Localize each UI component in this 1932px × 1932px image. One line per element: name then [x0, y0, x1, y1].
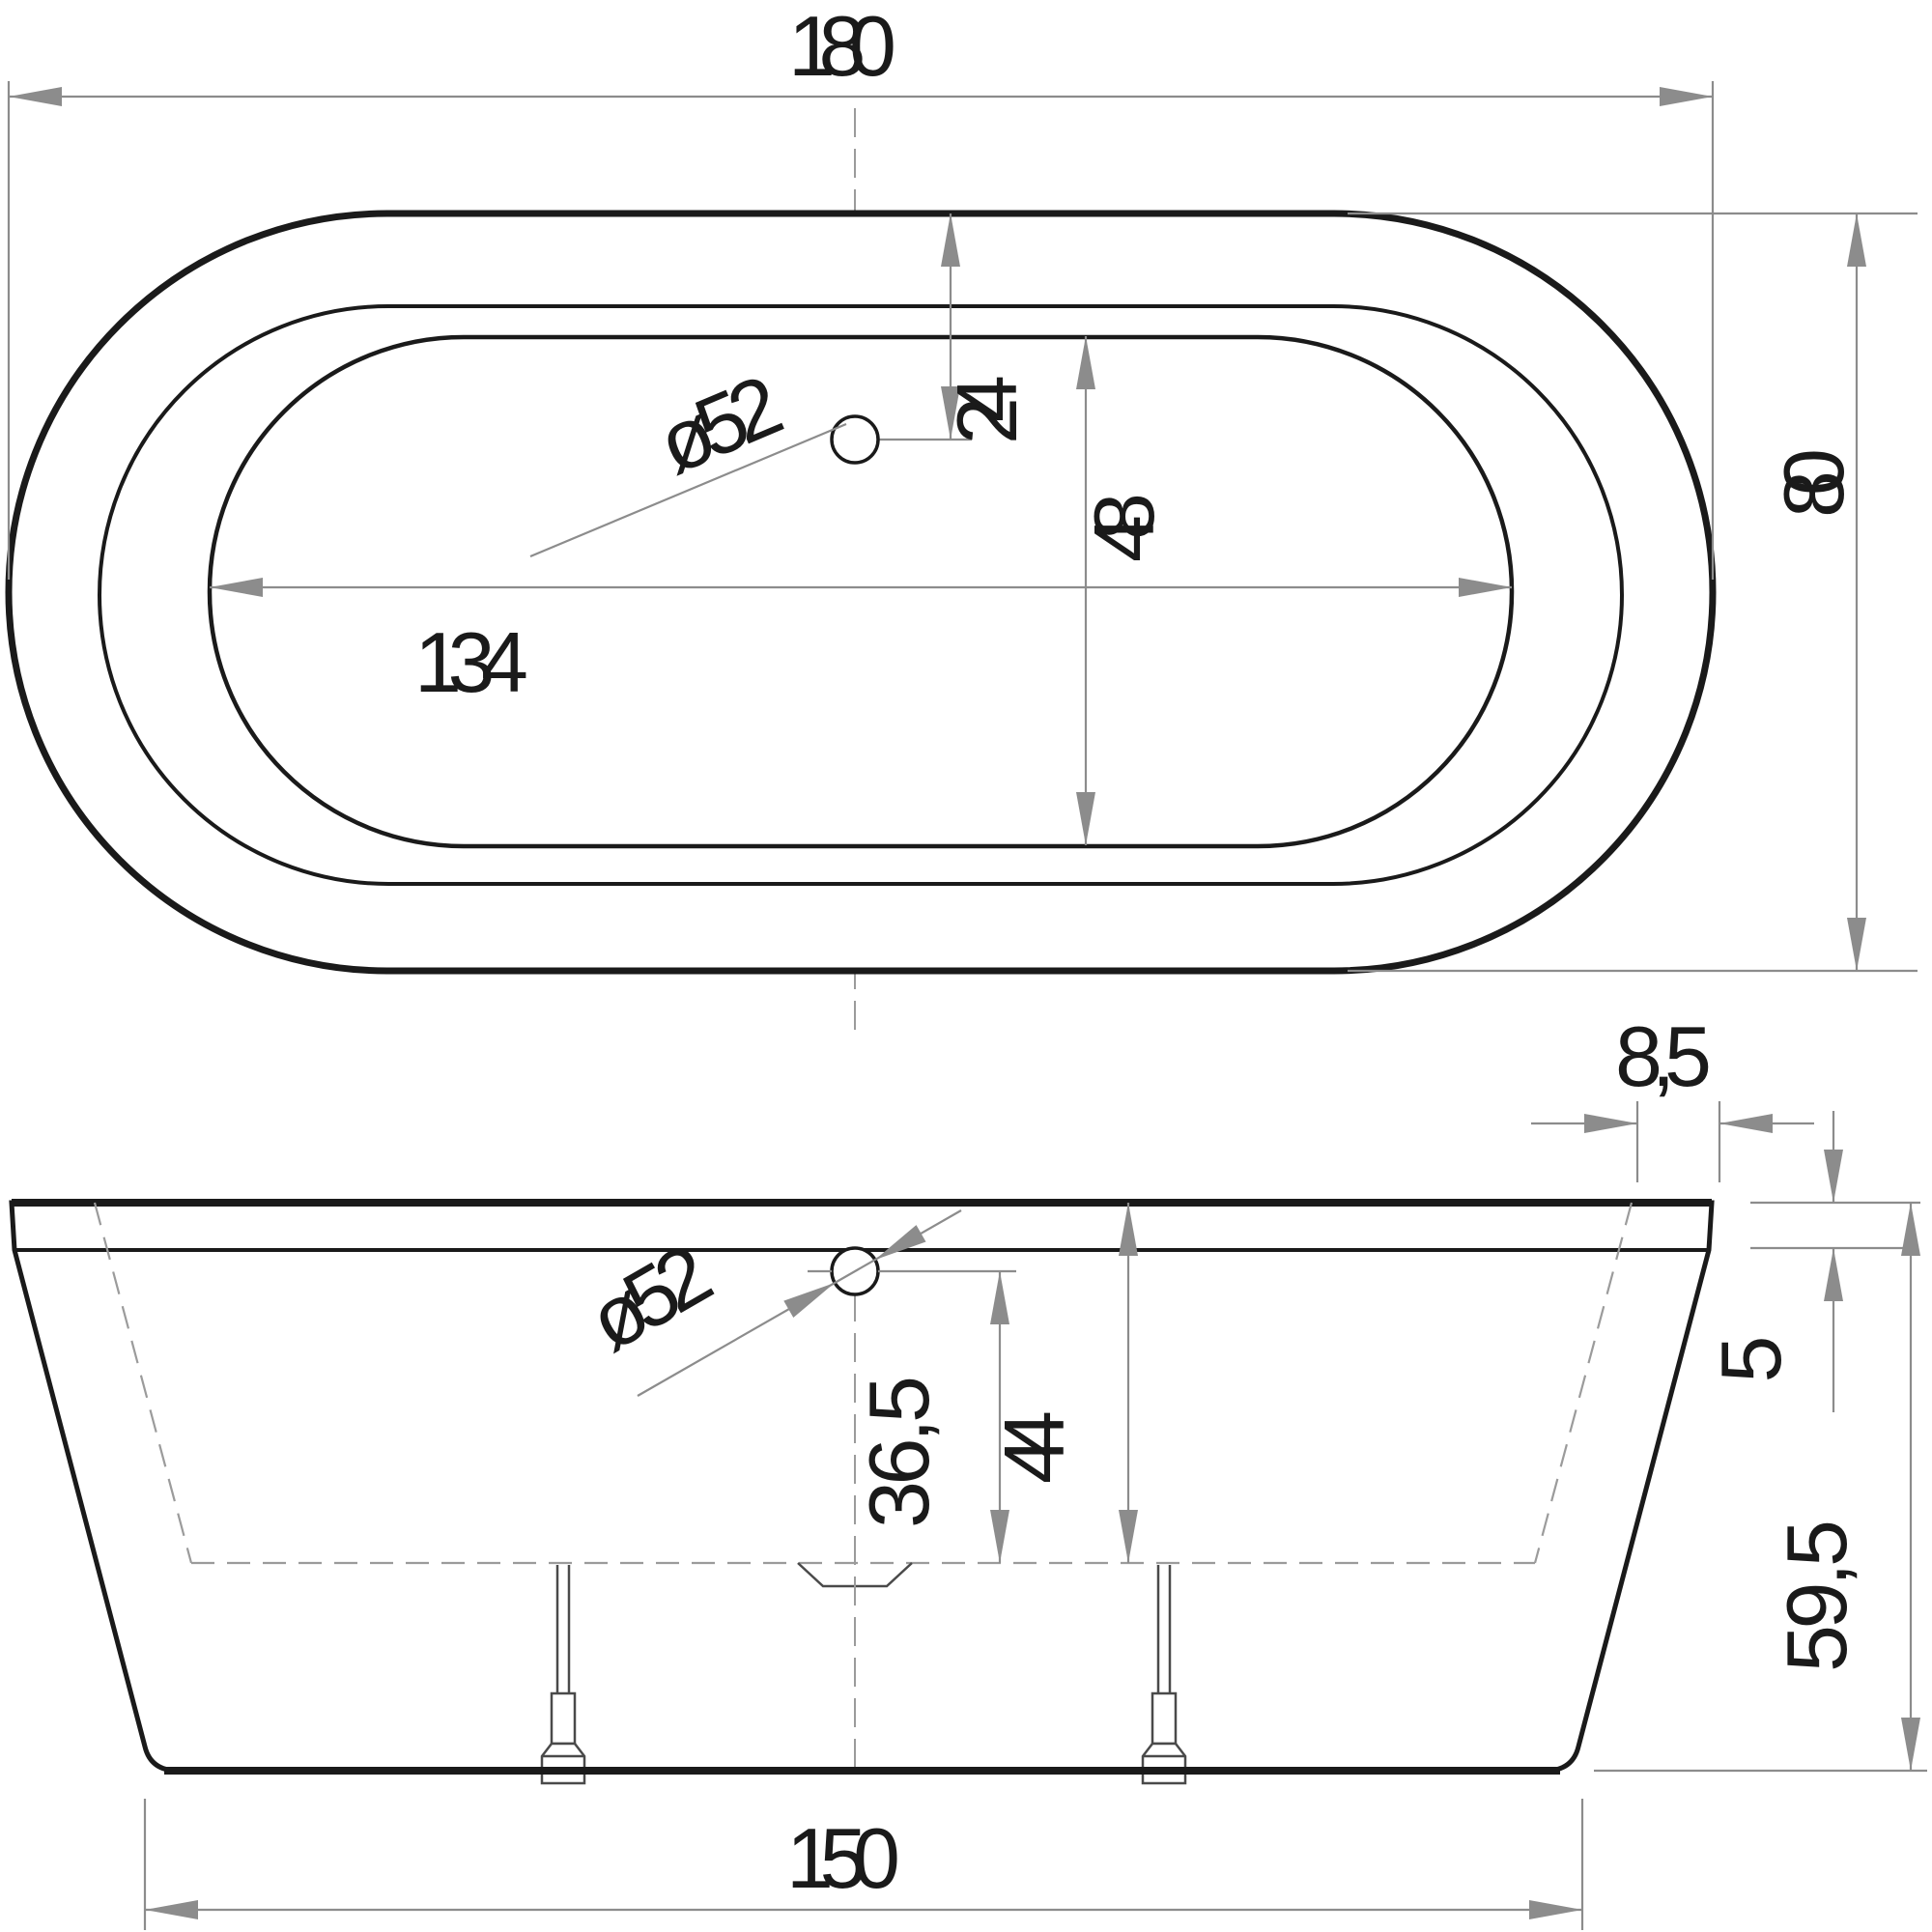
dim-label-48: 48: [1076, 493, 1172, 562]
drawing-canvas: 180 80 134 24: [0, 0, 1932, 1932]
top-view: 180 80 134 24: [9, 0, 1918, 1041]
bathtub-technical-drawing: 180 80 134 24: [0, 0, 1932, 1932]
drain-hole-plan: [832, 416, 878, 463]
dim-label-134: 134: [414, 614, 528, 710]
dim-label-59-5: 59,5: [1769, 1520, 1864, 1672]
front-view: ø52 8,5 5 59,5: [12, 1009, 1927, 1930]
dim-label-44: 44: [986, 1410, 1082, 1484]
dim-label-80: 80: [1766, 448, 1861, 518]
dim-base-length: 150: [145, 1799, 1582, 1930]
dim-label-24: 24: [939, 375, 1035, 444]
dim-label-8-5: 8,5: [1615, 1009, 1712, 1104]
dim-rim-height: 5: [1703, 1111, 1920, 1412]
dim-label-180: 180: [788, 0, 896, 94]
dim-label-5: 5: [1703, 1336, 1799, 1383]
dim-label-36-5: 36,5: [851, 1376, 947, 1528]
dim-rim-overhang: 8,5: [1531, 1009, 1814, 1182]
dim-label-150: 150: [786, 1810, 900, 1906]
